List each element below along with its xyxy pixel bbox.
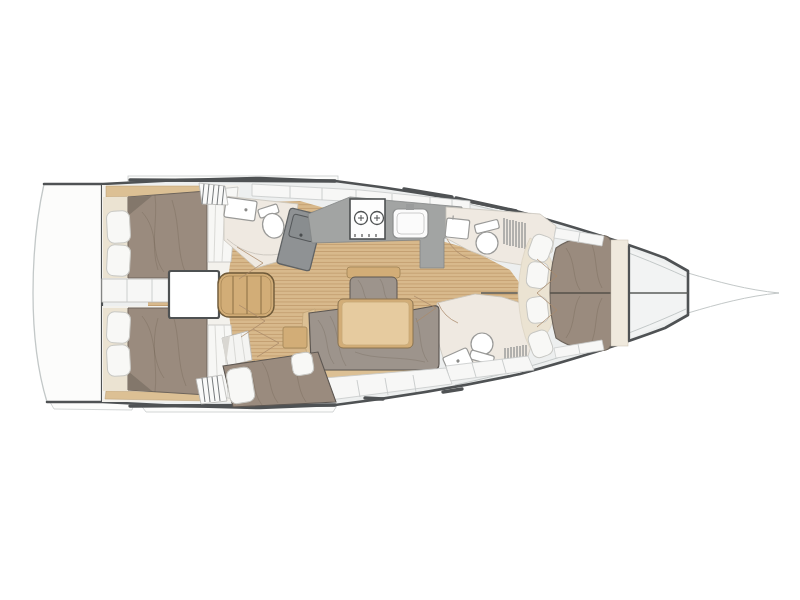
floorplan-canvas [0,0,800,600]
faucet [406,204,414,210]
headboard-shelf [611,240,628,346]
yacht-floorplan-figure [0,0,800,600]
galley-sink [393,204,428,238]
salon-table-top [342,302,409,345]
pillow [106,311,131,343]
pillow [225,366,255,404]
mid-shelf [102,279,177,302]
pillow [106,344,131,376]
settee [218,273,274,317]
toilet [474,219,499,254]
companionway-steps-box [169,271,219,318]
bench-base [347,267,400,278]
pillow [106,210,131,243]
aft-deck [33,185,102,401]
cabin-stairs [196,375,227,404]
bath-sink [224,197,257,221]
side-step-box [283,327,307,348]
pillow [290,351,314,376]
forward-cabin [518,228,629,360]
deck-hatch-top-left [130,180,335,181]
pillow [106,244,131,276]
companionway-stairs [199,183,228,205]
